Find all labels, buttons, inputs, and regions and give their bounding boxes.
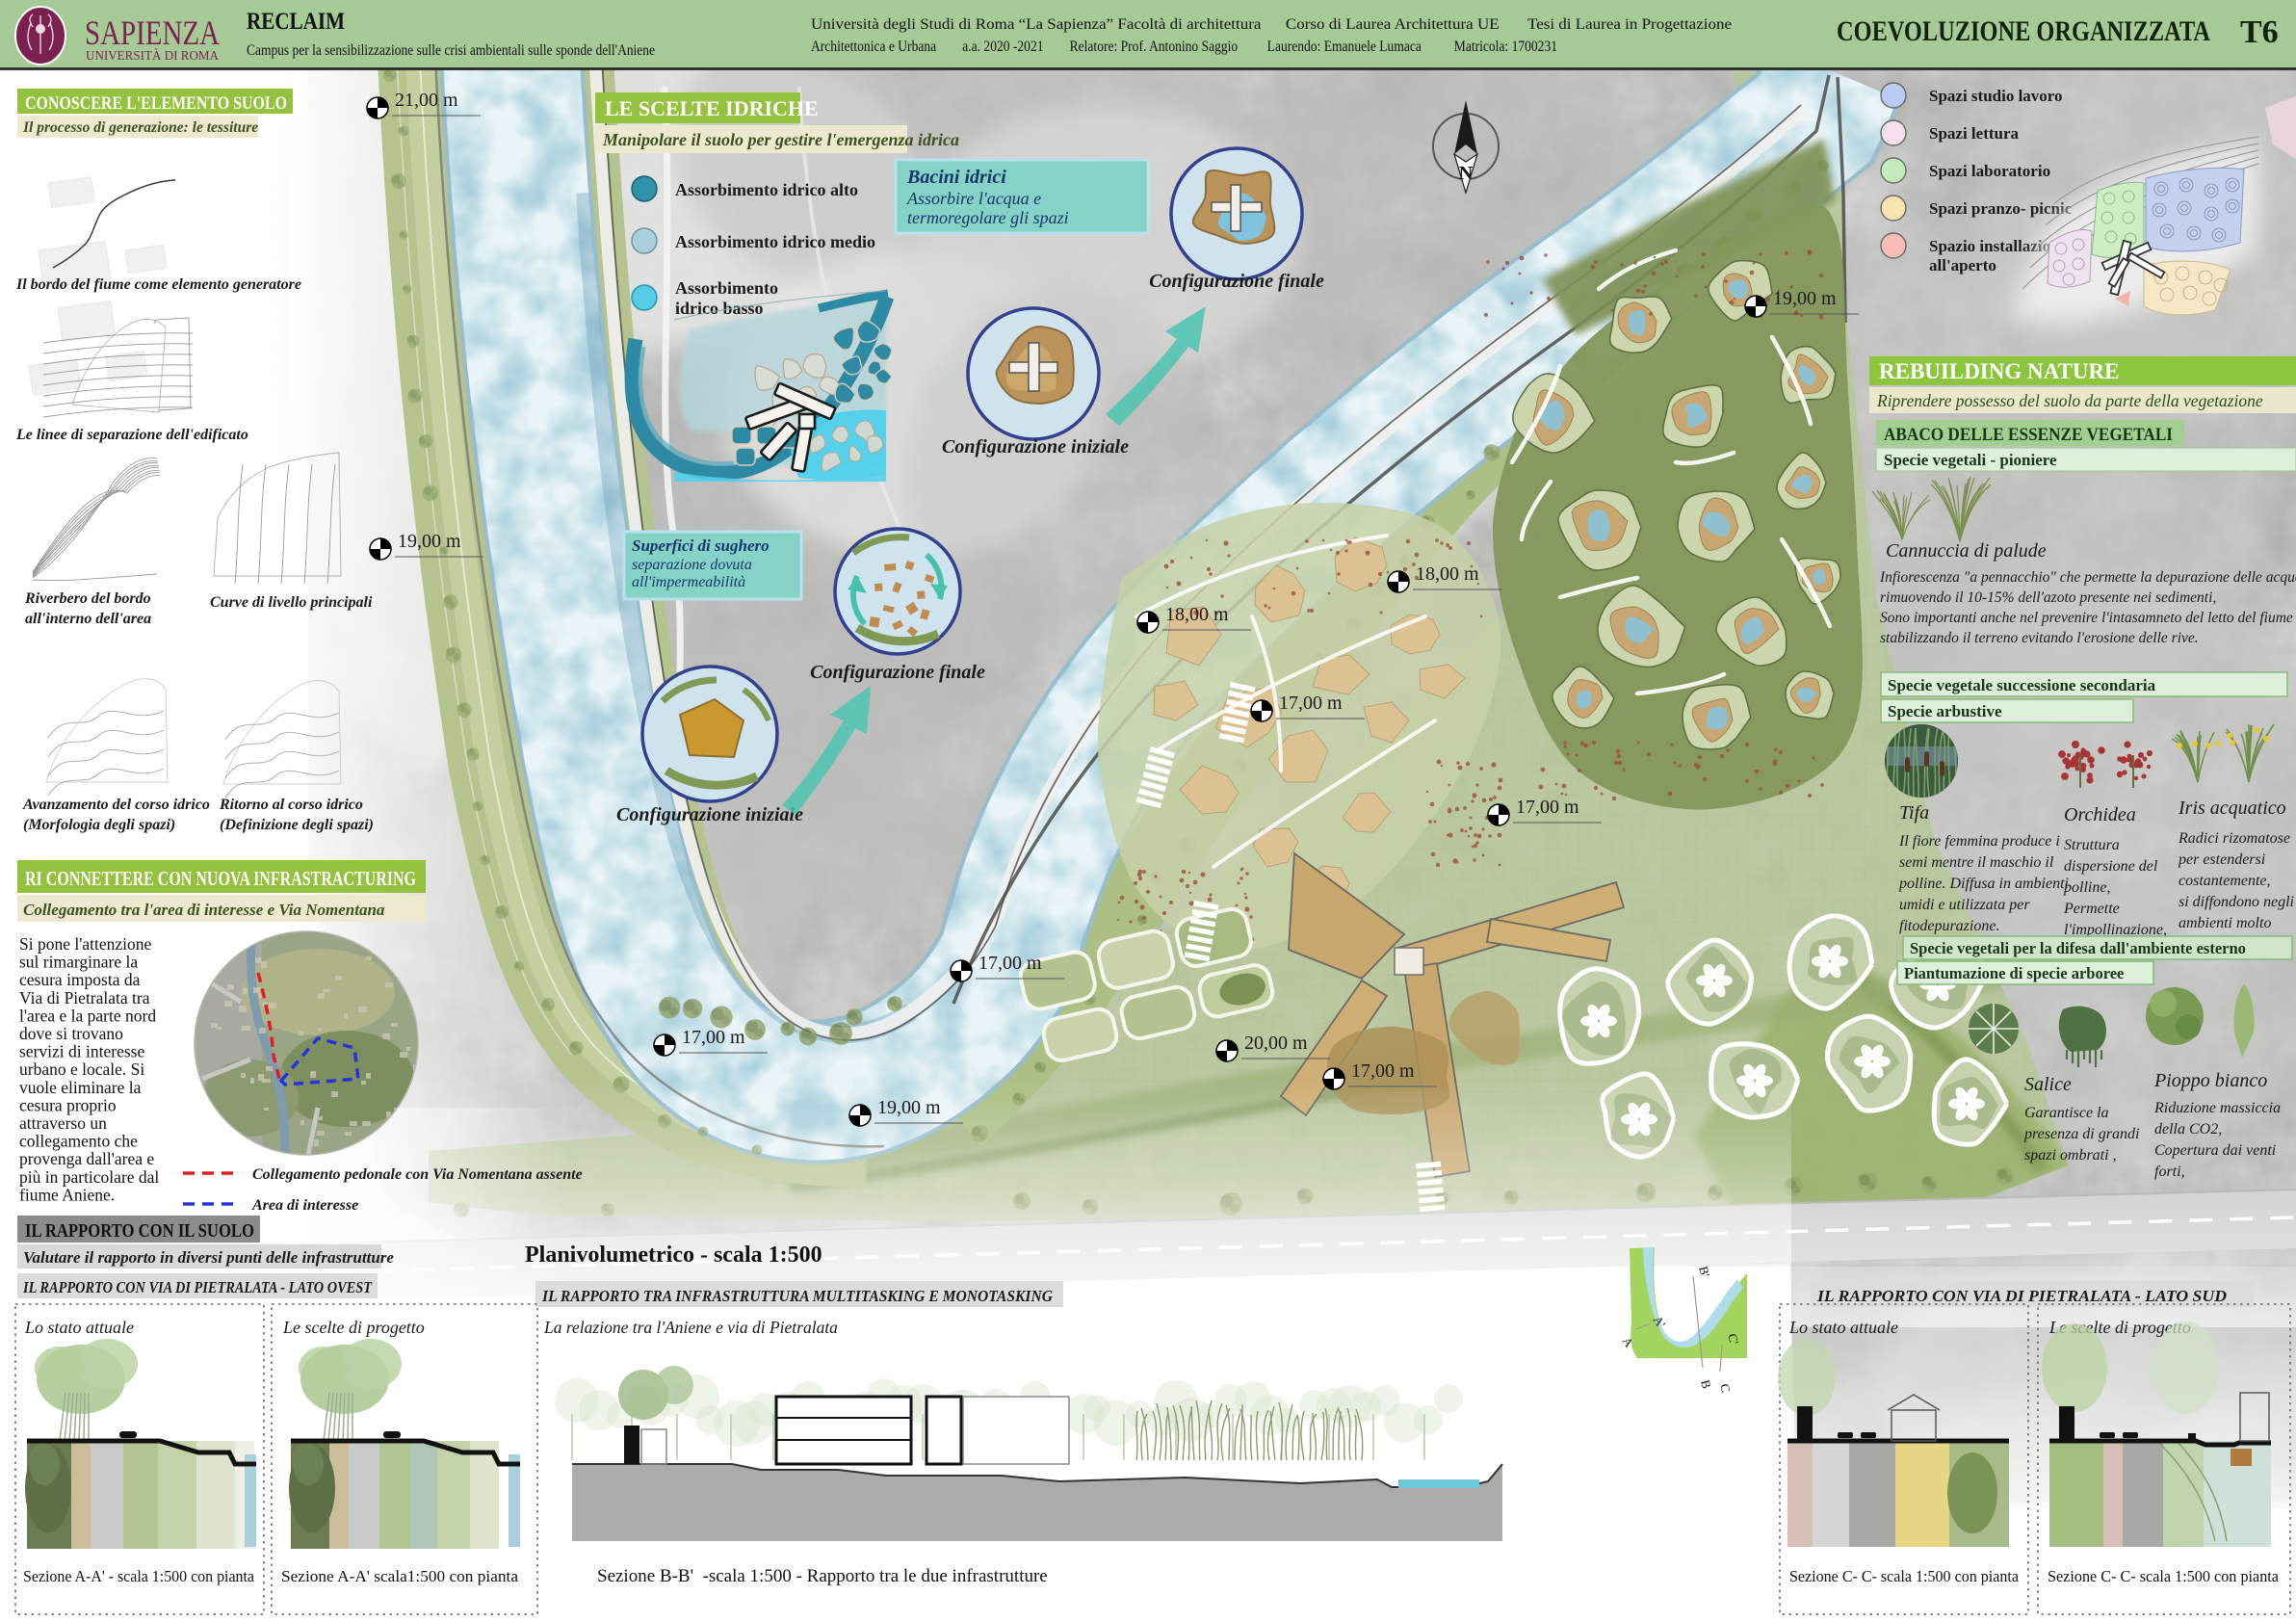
svg-text:della CO2,: della CO2, xyxy=(2154,1121,2222,1138)
svg-text:IL RAPPORTO CON IL SUOLO: IL RAPPORTO CON IL SUOLO xyxy=(25,1220,254,1242)
svg-text:Ritorno al corso idrico: Ritorno al corso idrico xyxy=(219,797,363,813)
svg-text:19,00 m: 19,00 m xyxy=(398,531,461,552)
svg-text:termoregolare gli spazi: termoregolare gli spazi xyxy=(907,208,1069,227)
svg-text:CONOSCERE L'ELEMENTO SUOLO: CONOSCERE L'ELEMENTO SUOLO xyxy=(25,93,287,114)
svg-text:19,00 m: 19,00 m xyxy=(1773,288,1837,309)
svg-text:21,00 m: 21,00 m xyxy=(395,90,458,111)
svg-text:Configurazione iniziale: Configurazione iniziale xyxy=(616,804,803,825)
svg-text:17,00 m: 17,00 m xyxy=(1351,1060,1415,1082)
svg-text:(Definizione degli spazi): (Definizione degli spazi) xyxy=(220,817,374,833)
svg-text:RECLAIM: RECLAIM xyxy=(247,9,345,35)
svg-text:ambienti molto: ambienti molto xyxy=(2179,915,2271,931)
svg-text:per estendersi: per estendersi xyxy=(2178,851,2265,868)
svg-text:IL RAPPORTO CON VIA DI PIETRAL: IL RAPPORTO CON VIA DI PIETRALATA - LATO… xyxy=(22,1278,372,1296)
svg-text:Copertura dai venti: Copertura dai venti xyxy=(2154,1142,2276,1159)
svg-text:rimuovendo il 10-15% dell'azot: rimuovendo il 10-15% dell'azoto presente… xyxy=(1880,589,2216,606)
svg-text:Assorbimento: Assorbimento xyxy=(675,278,778,298)
svg-text:Configurazione finale: Configurazione finale xyxy=(1149,271,1324,292)
svg-text:collegamento che: collegamento che xyxy=(19,1132,138,1151)
svg-text:fiume Aniene.: fiume Aniene. xyxy=(19,1185,115,1204)
svg-text:18,00 m: 18,00 m xyxy=(1416,563,1479,585)
svg-text:La relazione tra l'Aniene e vi: La relazione tra l'Aniene e via di Pietr… xyxy=(543,1318,838,1337)
svg-text:presenza di grandi: presenza di grandi xyxy=(2023,1126,2139,1142)
svg-text:Sezione C- C- scala 1:500 con: Sezione C- C- scala 1:500 con pianta xyxy=(2048,1567,2279,1585)
svg-text:UNIVERSITÀ DI ROMA: UNIVERSITÀ DI ROMA xyxy=(86,47,220,64)
svg-text:dispersione del: dispersione del xyxy=(2064,858,2158,875)
svg-text:urbano e locale. Si: urbano e locale. Si xyxy=(19,1060,144,1079)
svg-text:più in particolare dal: più in particolare dal xyxy=(19,1167,159,1187)
svg-text:all'impermeabilità: all'impermeabilità xyxy=(632,574,745,590)
svg-text:Sezione B-B' -scala 1:500 - R: Sezione B-B' -scala 1:500 - Rapporto tra… xyxy=(597,1566,1048,1586)
svg-text:Via di Pietralata tra: Via di Pietralata tra xyxy=(19,988,150,1007)
svg-text:Collegamento tra l'area di int: Collegamento tra l'area di interesse e V… xyxy=(23,901,385,919)
svg-text:Curve di livello principali: Curve di livello principali xyxy=(210,594,373,611)
svg-text:Riduzione massiccia: Riduzione massiccia xyxy=(2153,1100,2281,1116)
svg-text:T6: T6 xyxy=(2240,14,2279,50)
svg-text:SAPIENZA: SAPIENZA xyxy=(85,13,220,52)
svg-text:17,00 m: 17,00 m xyxy=(1516,797,1579,818)
svg-text:RI CONNETTERE CON NUOVA INFRAS: RI CONNETTERE CON NUOVA INFRASTRACTURING xyxy=(25,867,416,890)
svg-text:all'aperto: all'aperto xyxy=(1929,256,1996,275)
svg-text:idrico basso: idrico basso xyxy=(675,299,764,318)
svg-text:Le scelte di progetto: Le scelte di progetto xyxy=(282,1318,425,1337)
svg-text:17,00 m: 17,00 m xyxy=(1279,693,1343,714)
svg-text:Sono importanti anche nel prev: Sono importanti anche nel prevenire l'in… xyxy=(1880,610,2293,626)
svg-text:Spazi lettura: Spazi lettura xyxy=(1929,124,2020,143)
svg-text:Garantisce la: Garantisce la xyxy=(2024,1105,2109,1121)
svg-text:ABACO DELLE ESSENZE VEGETALI: ABACO DELLE ESSENZE VEGETALI xyxy=(1884,425,2173,445)
svg-text:Specie arbustive: Specie arbustive xyxy=(1888,702,2002,720)
svg-text:Sezione A-A' - scala 1:500 con: Sezione A-A' - scala 1:500 con pianta xyxy=(23,1567,254,1585)
svg-text:N: N xyxy=(1459,163,1474,184)
svg-text:COEVOLUZIONE ORGANIZZATA: COEVOLUZIONE ORGANIZZATA xyxy=(1837,15,2210,47)
svg-text:Permette: Permette xyxy=(2063,901,2120,917)
svg-text:polline,: polline, xyxy=(2063,879,2110,896)
svg-text:18,00 m: 18,00 m xyxy=(1165,604,1229,625)
svg-text:semi mentre il maschio il: semi mentre il maschio il xyxy=(1899,854,2054,871)
svg-text:Cannuccia di palude: Cannuccia di palude xyxy=(1886,540,2047,562)
svg-text:Spazi pranzo- picnic: Spazi pranzo- picnic xyxy=(1929,199,2073,218)
svg-text:cesura proprio: cesura proprio xyxy=(19,1095,117,1114)
svg-text:si diffondono negli: si diffondono negli xyxy=(2179,894,2294,910)
svg-text:Configurazione finale: Configurazione finale xyxy=(810,662,985,683)
svg-text:Piantumazione di specie arbore: Piantumazione di specie arboree xyxy=(1904,964,2124,982)
svg-text:Architettonica e Urbana: Architettonica e Urbana a.a. 2020 -2021 … xyxy=(811,39,1557,55)
svg-text:Salice: Salice xyxy=(2024,1074,2072,1095)
svg-text:Lo stato attuale: Lo stato attuale xyxy=(1788,1318,1898,1337)
svg-text:servizi di interesse: servizi di interesse xyxy=(19,1042,144,1061)
svg-text:LE SCELTE IDRICHE: LE SCELTE IDRICHE xyxy=(605,96,819,120)
svg-text:Manipolare il suolo per gestir: Manipolare il suolo per gestire l'emerge… xyxy=(602,130,959,149)
svg-text:Sezione C- C- scala 1:500 con: Sezione C- C- scala 1:500 con pianta xyxy=(1789,1567,2019,1585)
svg-text:Il fiore femmina produce i: Il fiore femmina produce i xyxy=(1898,833,2060,850)
svg-text:sul rimarginare la: sul rimarginare la xyxy=(19,953,138,972)
svg-text:fitodepurazione.: fitodepurazione. xyxy=(1899,918,1999,934)
svg-text:Valutare il rapporto in divers: Valutare il rapporto in diversi punti de… xyxy=(23,1248,394,1267)
svg-text:Planivolumetrico - scala 1:500: Planivolumetrico - scala 1:500 xyxy=(525,1243,822,1268)
svg-text:17,00 m: 17,00 m xyxy=(682,1027,745,1048)
svg-text:IL RAPPORTO TRA INFRASTRUTTURA: IL RAPPORTO TRA INFRASTRUTTURA MULTITASK… xyxy=(541,1287,1054,1305)
svg-text:Configurazione iniziale: Configurazione iniziale xyxy=(942,436,1129,458)
svg-text:19,00 m: 19,00 m xyxy=(877,1097,941,1118)
svg-text:Lo stato attuale: Lo stato attuale xyxy=(24,1318,134,1337)
svg-text:Sezione A-A' scala1:500 con pi: Sezione A-A' scala1:500 con pianta xyxy=(281,1567,518,1585)
svg-text:Specie vegetali per la difesa: Specie vegetali per la difesa dall'ambie… xyxy=(1910,939,2246,957)
svg-text:Spazi laboratorio: Spazi laboratorio xyxy=(1929,162,2050,180)
svg-text:Riprendere possesso del suolo: Riprendere possesso del suolo da parte d… xyxy=(1876,391,2263,410)
svg-text:REBUILDING NATURE: REBUILDING NATURE xyxy=(1879,359,2119,383)
svg-text:Specie vegetale successione se: Specie vegetale successione secondaria xyxy=(1888,676,2156,694)
svg-text:Spazi studio lavoro: Spazi studio lavoro xyxy=(1929,87,2063,105)
svg-text:provenga dall'area e: provenga dall'area e xyxy=(19,1149,154,1168)
svg-text:umidi e utilizzata per: umidi e utilizzata per xyxy=(1899,897,2030,913)
svg-text:all'interno dell'area: all'interno dell'area xyxy=(25,611,151,627)
svg-text:attraverso un: attraverso un xyxy=(19,1113,107,1133)
svg-text:Il bordo del fiume come elemen: Il bordo del fiume come elemento generat… xyxy=(15,276,301,293)
svg-text:Infiorescenza "a pennacchio" c: Infiorescenza "a pennacchio" che permett… xyxy=(1879,569,2296,586)
svg-text:17,00 m: 17,00 m xyxy=(978,953,1042,974)
svg-text:20,00 m: 20,00 m xyxy=(1244,1033,1308,1054)
svg-text:separazione dovuta: separazione dovuta xyxy=(632,557,752,573)
svg-text:Area di interesse: Area di interesse xyxy=(251,1197,358,1214)
svg-text:Bacini idrici: Bacini idrici xyxy=(906,167,1006,188)
svg-text:Università degli Studi di Roma: Università degli Studi di Roma “La Sapie… xyxy=(811,16,1732,33)
svg-text:Specie vegetali - pioniere: Specie vegetali - pioniere xyxy=(1884,451,2057,469)
svg-text:(Morfologia degli spazi): (Morfologia degli spazi) xyxy=(23,817,175,833)
svg-text:Tifa: Tifa xyxy=(1899,802,1929,824)
svg-text:cesura imposta da: cesura imposta da xyxy=(19,970,141,989)
svg-text:Orchidea: Orchidea xyxy=(2064,804,2136,825)
svg-text:stabilizzando il terreno evita: stabilizzando il terreno evitando l'eros… xyxy=(1880,630,2199,646)
svg-text:Riverbero del bordo: Riverbero del bordo xyxy=(24,590,151,607)
svg-text:Avanzamento del corso idrico: Avanzamento del corso idrico xyxy=(22,797,210,813)
svg-text:vuole eliminare la: vuole eliminare la xyxy=(19,1078,142,1097)
svg-text:l'area e la parte nord: l'area e la parte nord xyxy=(19,1006,156,1025)
svg-text:dove si trovano: dove si trovano xyxy=(19,1024,123,1043)
svg-text:forti,: forti, xyxy=(2154,1164,2185,1180)
svg-text:Assorbimento idrico medio: Assorbimento idrico medio xyxy=(675,232,875,251)
svg-text:Radici rizomatose: Radici rizomatose xyxy=(2178,830,2290,847)
svg-text:Campus per la sensibilizzazion: Campus per la sensibilizzazione sulle cr… xyxy=(247,42,655,59)
svg-text:Le linee di separazione dell'e: Le linee di separazione dell'edificato xyxy=(15,427,248,443)
svg-text:spazi ombrati ,: spazi ombrati , xyxy=(2024,1147,2117,1164)
svg-text:Assorbimento idrico alto: Assorbimento idrico alto xyxy=(675,180,858,199)
svg-text:Si pone l'attenzione: Si pone l'attenzione xyxy=(19,934,152,954)
svg-text:costantemente,: costantemente, xyxy=(2179,873,2271,889)
svg-text:Il processo di generazione: le: Il processo di generazione: le tessiture xyxy=(22,119,258,136)
svg-text:Pioppo bianco: Pioppo bianco xyxy=(2153,1070,2267,1091)
svg-text:polline. Diffusa in ambienti: polline. Diffusa in ambienti xyxy=(1898,876,2069,892)
svg-text:Struttura: Struttura xyxy=(2064,837,2120,853)
svg-text:Iris acquatico: Iris acquatico xyxy=(2178,798,2286,819)
svg-text:IL RAPPORTO CON VIA DI PIETRAL: IL RAPPORTO CON VIA DI PIETRALATA - LATO… xyxy=(1816,1287,2227,1305)
svg-text:Collegamento pedonale con Via: Collegamento pedonale con Via Nomentana … xyxy=(252,1166,583,1183)
svg-text:Assorbire l'acqua e: Assorbire l'acqua e xyxy=(906,189,1041,208)
svg-text:Superfici di sughero: Superfici di sughero xyxy=(632,536,770,555)
